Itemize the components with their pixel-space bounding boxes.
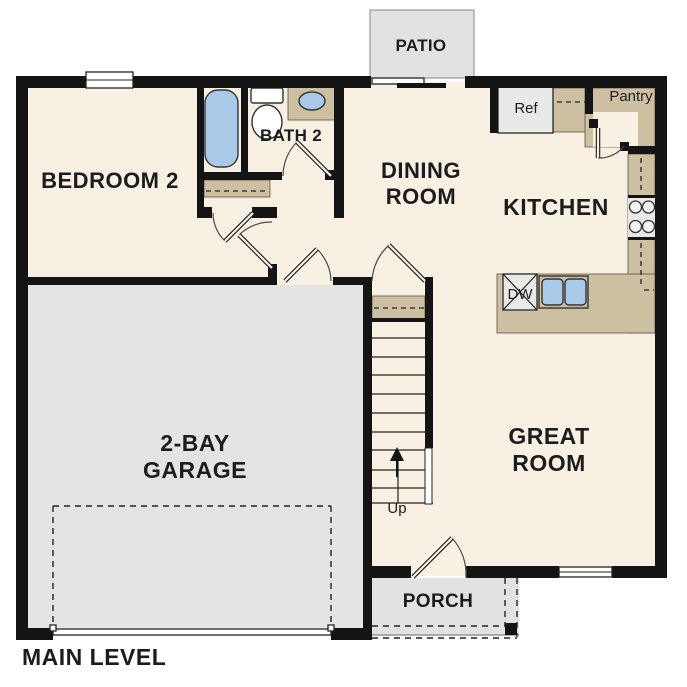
bath2-label: BATH 2 <box>260 126 322 145</box>
toilet-tank <box>251 88 283 103</box>
garage-label-line1: 2-BAY <box>160 430 229 456</box>
wall-bath-dining <box>334 76 344 218</box>
garage-label-line2: GARAGE <box>143 457 247 483</box>
wall-top-left <box>16 76 371 88</box>
plan-title: MAIN LEVEL <box>22 644 166 670</box>
floor-plan: BEDROOM 2 BATH 2 DINING ROOM KITCHEN GRE… <box>0 0 687 687</box>
kitchen-label: KITCHEN <box>503 194 609 220</box>
wall-stair-right <box>425 285 433 448</box>
garage-door-track-right <box>328 625 334 631</box>
dining-label-line2: ROOM <box>386 184 456 209</box>
garage-door-track-left <box>50 625 56 631</box>
wall-left <box>16 76 28 640</box>
porch-label: PORCH <box>403 591 474 612</box>
bath-sink <box>299 92 325 110</box>
floor-plan-drawing: BEDROOM 2 BATH 2 DINING ROOM KITCHEN GRE… <box>0 0 687 687</box>
bathtub <box>205 90 238 167</box>
wall-ref-stub <box>490 86 498 133</box>
wall-greatroom-bottom-3 <box>612 566 667 578</box>
wall-bath-bottom <box>248 172 282 180</box>
bedroom2-label: BEDROOM 2 <box>41 168 179 193</box>
wall-right <box>655 76 667 578</box>
porch-post <box>505 623 517 635</box>
wall-tub-left <box>197 88 204 218</box>
wall-stair-closet-bottom <box>372 318 425 322</box>
stair-closet-shelf <box>372 296 425 319</box>
garage-door-sill <box>53 629 331 635</box>
wall-pantry-bottom <box>628 146 655 154</box>
pantry-label: Pantry <box>609 88 653 105</box>
wall-pantry-corner-1 <box>589 119 598 128</box>
dining-label-line1: DINING <box>381 158 461 183</box>
range-top-edge <box>628 195 655 198</box>
kitchen-sink-basin-left <box>542 279 563 305</box>
stair-handrail <box>425 448 432 504</box>
greatroom-label-line2: ROOM <box>512 450 586 476</box>
wall-garage-right <box>363 277 372 640</box>
stairs-up-label: Up <box>387 500 406 517</box>
refrigerator-label: Ref <box>514 100 538 117</box>
wall-stair-door-corner <box>425 277 433 285</box>
patio-slider-panel-inner <box>397 83 446 88</box>
dishwasher-label: DW <box>508 286 534 303</box>
bedroom-closet-shelf <box>204 180 270 197</box>
greatroom-label-line1: GREAT <box>508 423 589 449</box>
wall-garage-bottom-right <box>331 628 363 640</box>
wall-bedroom-garage <box>16 277 268 285</box>
wall-pantry-stub <box>585 88 593 114</box>
wall-tub-bath-divider <box>241 88 248 172</box>
wall-closet-stub-right <box>252 207 277 218</box>
wall-garage-bottom-left <box>16 628 53 640</box>
wall-greatroom-bottom-2 <box>466 566 559 578</box>
kitchen-sink-basin-right <box>565 279 586 305</box>
patio-label: PATIO <box>396 36 447 55</box>
range-bottom-edge <box>628 237 655 240</box>
wall-tub-bottom <box>197 172 248 180</box>
